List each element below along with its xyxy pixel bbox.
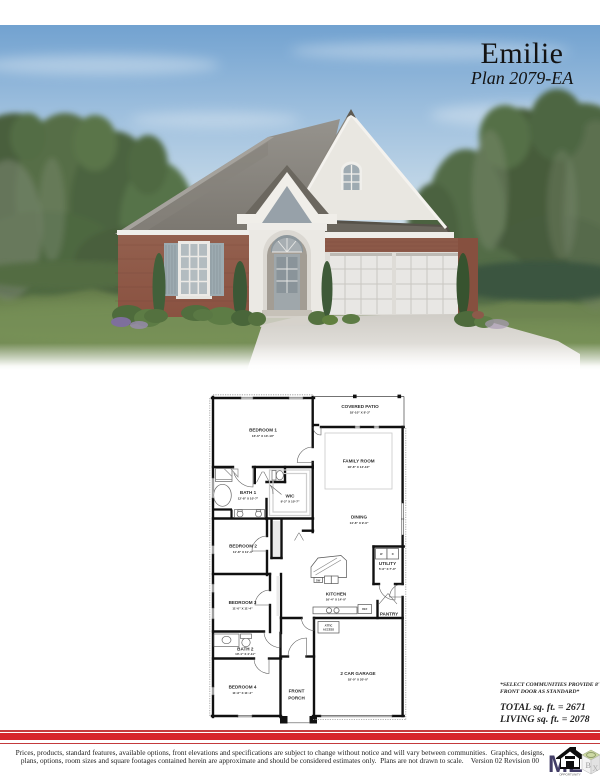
svg-text:FAMILY ROOM: FAMILY ROOM xyxy=(343,459,375,464)
svg-text:11'-0" X 11'-4": 11'-0" X 11'-4" xyxy=(232,607,253,611)
svg-text:BEDROOM 2: BEDROOM 2 xyxy=(229,544,257,549)
svg-text:X: X xyxy=(593,764,599,773)
svg-text:2 CAR GARAGE: 2 CAR GARAGE xyxy=(340,671,375,676)
svg-text:BATH 1: BATH 1 xyxy=(240,490,257,495)
svg-text:18'-10" X 8'-2": 18'-10" X 8'-2" xyxy=(350,411,371,415)
svg-text:18'-8" X 14'-10": 18'-8" X 14'-10" xyxy=(348,465,371,469)
svg-text:ACCESS: ACCESS xyxy=(323,628,334,632)
svg-text:BEDROOM 1: BEDROOM 1 xyxy=(249,428,277,433)
svg-text:B: B xyxy=(586,761,591,770)
svg-text:REF: REF xyxy=(362,607,368,611)
svg-text:11'-6" X 11'-4": 11'-6" X 11'-4" xyxy=(232,691,253,695)
svg-text:14'-8" X 9'-6": 14'-8" X 9'-6" xyxy=(350,521,369,525)
svg-text:PANTRY: PANTRY xyxy=(380,612,398,617)
svg-text:PORCH: PORCH xyxy=(288,696,305,701)
svg-text:10'-1" X 4'-11": 10'-1" X 4'-11" xyxy=(235,652,256,656)
svg-text:16'-6" X 13'-10": 16'-6" X 13'-10" xyxy=(252,434,275,438)
svg-text:OPPORTUNITY: OPPORTUNITY xyxy=(559,773,581,777)
svg-text:16'-4" X 14'-0": 16'-4" X 14'-0" xyxy=(326,598,347,602)
svg-text:WIC: WIC xyxy=(286,494,296,499)
svg-text:BEDROOM 3: BEDROOM 3 xyxy=(229,600,257,605)
svg-text:COVERED PATIO: COVERED PATIO xyxy=(341,404,379,409)
svg-text:DINING: DINING xyxy=(351,515,368,520)
svg-text:ATTIC: ATTIC xyxy=(325,624,333,628)
svg-text:UTILITY: UTILITY xyxy=(379,561,396,566)
svg-text:DW: DW xyxy=(316,579,321,583)
svg-text:FRONT: FRONT xyxy=(289,689,305,694)
svg-text:KITCHEN: KITCHEN xyxy=(326,592,347,597)
svg-text:18'-0" X 20'-0": 18'-0" X 20'-0" xyxy=(348,678,369,682)
svg-text:12'-8" X 10'-7": 12'-8" X 10'-7" xyxy=(238,497,259,501)
svg-text:5'-6" X 7'-0": 5'-6" X 7'-0" xyxy=(379,567,397,571)
svg-text:BEDROOM 4: BEDROOM 4 xyxy=(229,685,257,690)
svg-text:D: D xyxy=(392,552,394,556)
svg-text:BATH 2: BATH 2 xyxy=(237,647,254,652)
svg-text:9'-2" X 10'-7": 9'-2" X 10'-7" xyxy=(281,500,300,504)
svg-text:11'-8" X 11'-4": 11'-8" X 11'-4" xyxy=(233,550,254,554)
